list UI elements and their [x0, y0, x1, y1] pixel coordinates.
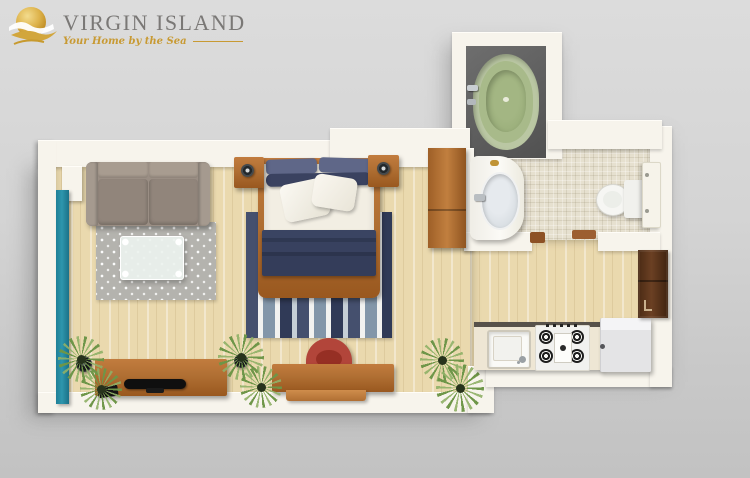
wall-bathroom-bottom-right: [598, 232, 660, 251]
sofa-back-cushion: [149, 162, 198, 178]
soap-dish-icon: [490, 160, 499, 166]
potted-plant: [436, 364, 484, 412]
stove-burner-icon: [539, 330, 553, 344]
sink-faucet-icon: [474, 194, 485, 201]
stove-center-grate: [554, 333, 572, 363]
refrigerator: [600, 318, 651, 372]
stove-burner-icon: [570, 349, 584, 363]
logo-text-block: VIRGIN ISLAND Your Home by the Sea: [63, 4, 246, 47]
bathtub-faucet-icon: [467, 85, 478, 91]
bathtub-handle-icon: [467, 99, 476, 105]
stove-burner-icon: [570, 330, 584, 344]
bathroom-door-panel: [642, 162, 661, 228]
kitchen-faucet-icon: [519, 356, 526, 363]
potted-plant: [240, 366, 282, 408]
toilet-seat: [603, 191, 622, 208]
door-threshold-left: [530, 232, 545, 243]
coffee-table: [120, 236, 184, 280]
sofa: [86, 162, 210, 226]
bed-pillow-white-right: [311, 173, 359, 212]
tv-stand: [146, 388, 164, 393]
logo-title: VIRGIN ISLAND: [63, 10, 246, 36]
sofa-arm-left: [86, 162, 98, 226]
cabinet-handle-icon: [644, 300, 652, 311]
brand-logo: VIRGIN ISLAND Your Home by the Sea: [8, 4, 246, 52]
logo-tagline: Your Home by the Sea: [63, 36, 187, 47]
desk-keyboard-tray: [286, 390, 366, 401]
sink-basin: [480, 172, 520, 230]
sofa-back-cushion: [98, 162, 148, 178]
logo-subrow: Your Home by the Sea: [63, 36, 246, 47]
logo-tagline-rule: [193, 41, 243, 42]
table-lamp-left-icon: [241, 164, 254, 177]
table-lamp-right-icon: [377, 162, 390, 175]
screenshot-canvas: VIRGIN ISLAND Your Home by the Sea: [0, 0, 750, 478]
wardrobe: [428, 148, 466, 248]
fridge-handle-icon: [600, 344, 605, 349]
desk: [272, 364, 394, 392]
stove-center-burner-icon: [560, 345, 566, 351]
gas-stove: [535, 325, 590, 371]
wall-left: [38, 140, 56, 413]
wall-bathroom-top: [548, 120, 662, 149]
stove-burner-icon: [539, 349, 553, 363]
bed-blanket-navy: [262, 230, 376, 276]
door-threshold-right: [572, 230, 596, 239]
kitchen-sink-basin: [493, 336, 522, 361]
sofa-arm-right: [198, 162, 210, 226]
stove-knobs: [546, 324, 580, 327]
door-hinge-icon: [645, 209, 649, 213]
bathtub-drain: [503, 97, 509, 102]
door-hinge-icon: [645, 173, 649, 177]
sofa-seat-cushion: [149, 179, 198, 225]
kitchen-sink: [487, 330, 531, 369]
potted-plant: [80, 368, 122, 410]
tall-cabinet: [638, 250, 668, 318]
sun-waves-icon: [8, 4, 60, 52]
pedestal-sink: [470, 156, 524, 240]
sofa-seat-cushion: [98, 179, 148, 225]
